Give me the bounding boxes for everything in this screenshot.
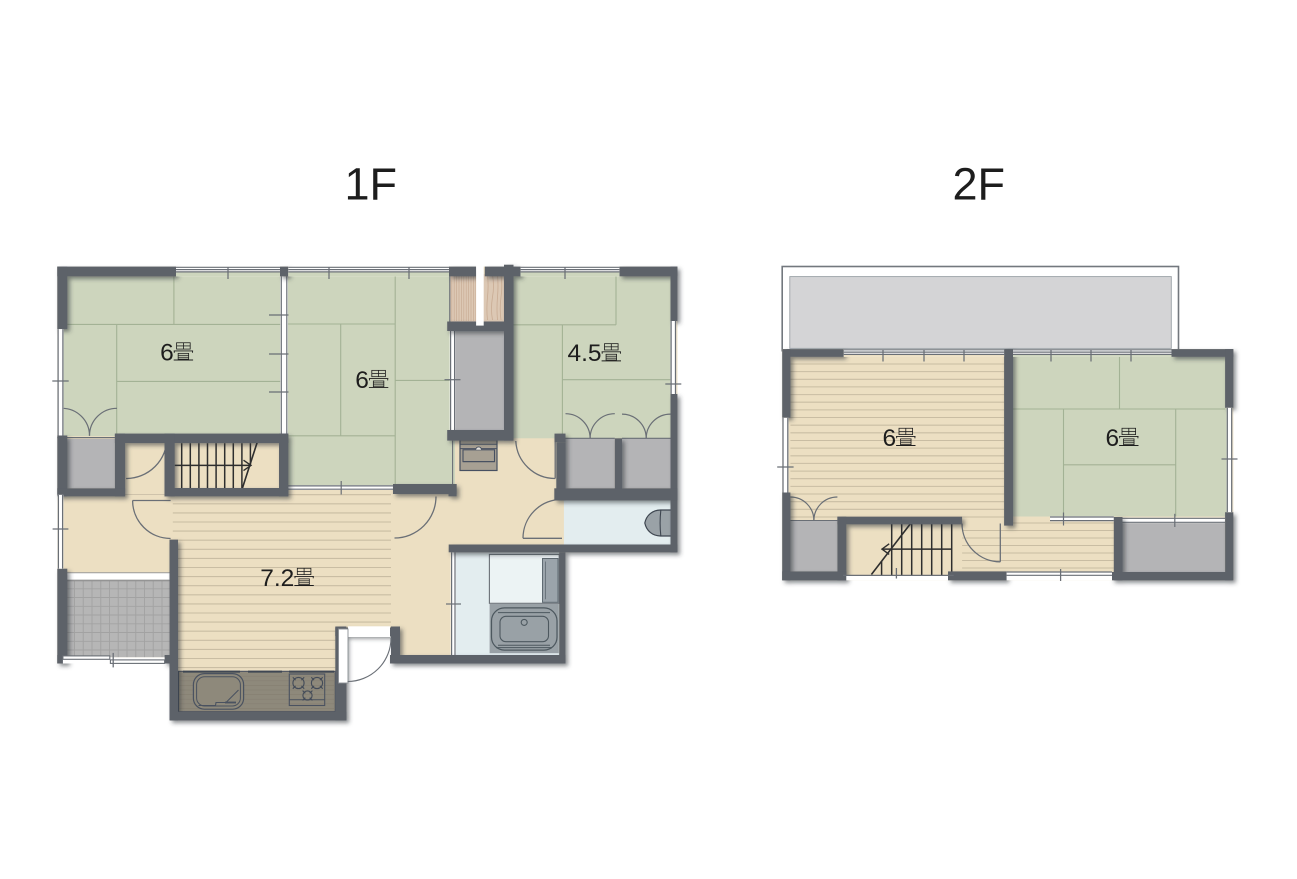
svg-text:6: 6 <box>160 339 174 366</box>
svg-text:6: 6 <box>883 425 897 452</box>
svg-text:6: 6 <box>355 367 369 394</box>
svg-text:1F: 1F <box>345 159 398 210</box>
svg-text:4.5: 4.5 <box>568 340 602 367</box>
svg-text:6: 6 <box>1106 425 1120 452</box>
svg-text:2F: 2F <box>953 159 1006 210</box>
svg-text:7.2: 7.2 <box>260 565 294 592</box>
